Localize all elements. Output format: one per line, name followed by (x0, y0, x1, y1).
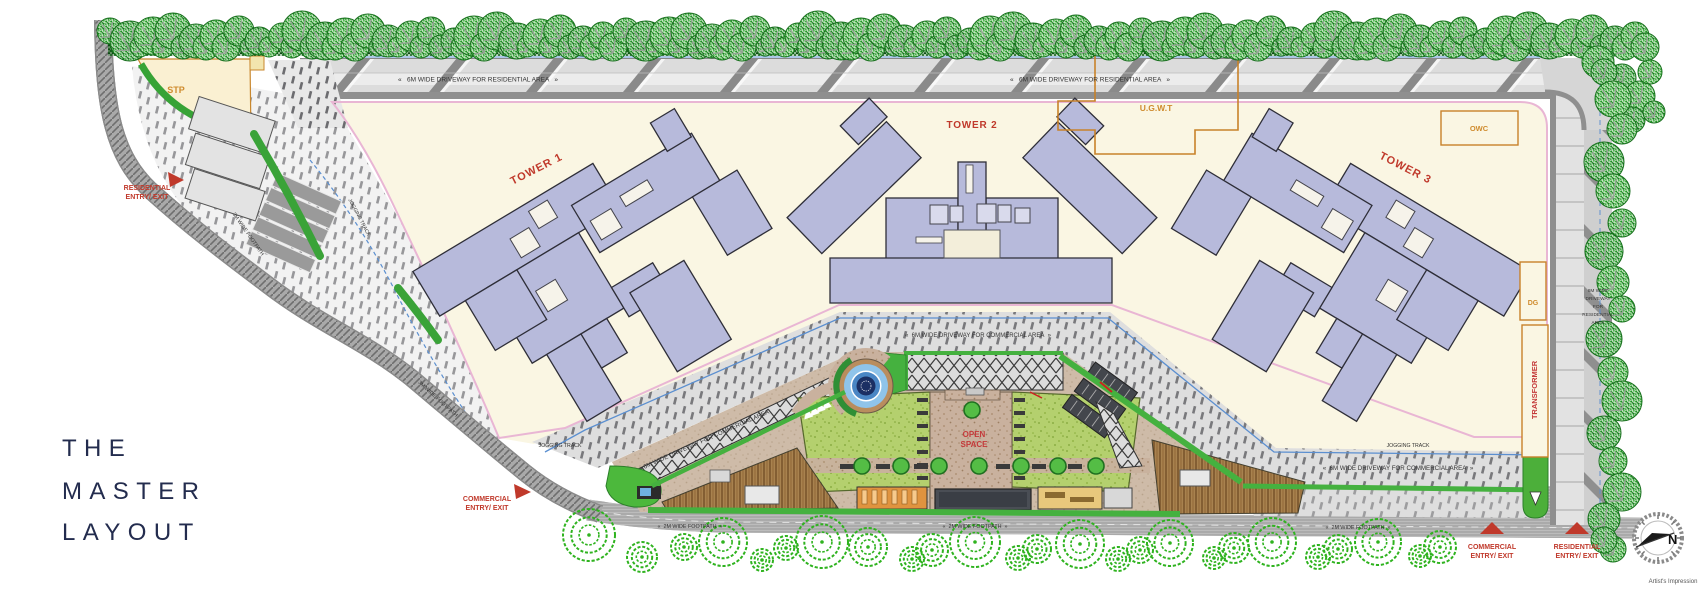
svg-text:TRANSFORMER: TRANSFORMER (1530, 360, 1539, 419)
svg-text:OWC: OWC (1470, 124, 1489, 133)
svg-text:« 6M WIDE DRIVEWAY FOR COMMER: « 6M WIDE DRIVEWAY FOR COMMERCIAL AREA » (1323, 465, 1474, 472)
svg-text:COMMERCIAL: COMMERCIAL (463, 496, 512, 503)
svg-text:« 6M WIDE DRIVEWAY FOR RESID: « 6M WIDE DRIVEWAY FOR RESIDENTIAL AREA … (398, 77, 558, 84)
svg-text:TOWER 2: TOWER 2 (947, 120, 998, 131)
svg-text:AREA: AREA (1591, 320, 1605, 326)
svg-text:DG: DG (1528, 300, 1539, 307)
svg-text:ENTRY/ EXIT: ENTRY/ EXIT (466, 505, 510, 512)
svg-text:RESIDENTIAL: RESIDENTIAL (1554, 544, 1601, 551)
svg-text:« 2M WIDE FOOTPATH »: « 2M WIDE FOOTPATH » (657, 524, 722, 530)
svg-text:STP: STP (167, 85, 185, 95)
svg-text:SPACE: SPACE (961, 440, 989, 449)
svg-text:« 2M WIDE FOOTPATH »: « 2M WIDE FOOTPATH » (942, 524, 1007, 530)
svg-text:6M WIDE: 6M WIDE (1588, 288, 1609, 294)
svg-text:RESIDENTIAL: RESIDENTIAL (1582, 312, 1614, 318)
svg-text:RESIDENTIAL: RESIDENTIAL (124, 185, 171, 192)
svg-text:« 2M WIDE FOOTPATH »: « 2M WIDE FOOTPATH » (1325, 525, 1390, 531)
svg-text:ENTRY/ EXIT: ENTRY/ EXIT (126, 194, 170, 201)
svg-text:MASTER: MASTER (62, 478, 206, 505)
svg-text:« 6M WIDE DRIVEWAY FOR RESID: « 6M WIDE DRIVEWAY FOR RESIDENTIAL AREA … (1010, 77, 1170, 84)
svg-text:N: N (1668, 532, 1677, 547)
svg-text:ENTRY/ EXIT: ENTRY/ EXIT (1556, 553, 1600, 560)
svg-text:DRIVEWAY: DRIVEWAY (1585, 296, 1611, 302)
svg-text:OPEN: OPEN (963, 430, 986, 439)
svg-text:JOGGING TRACK: JOGGING TRACK (539, 443, 582, 449)
svg-text:ENTRY/ EXIT: ENTRY/ EXIT (1471, 553, 1515, 560)
svg-text:FOR: FOR (1593, 304, 1604, 310)
svg-text:« 6M WIDE DRIVEWAY FOR COMMER: « 6M WIDE DRIVEWAY FOR COMMERCIAL AREA » (905, 333, 1052, 339)
svg-text:Artist's Impression: Artist's Impression (1649, 579, 1698, 585)
svg-text:JOGGING TRACK: JOGGING TRACK (1387, 443, 1430, 449)
svg-text:COMMERCIAL: COMMERCIAL (1468, 544, 1517, 551)
svg-text:U.G.W.T: U.G.W.T (1140, 103, 1173, 113)
svg-text:LAYOUT: LAYOUT (62, 519, 201, 546)
svg-text:THE: THE (62, 435, 132, 462)
